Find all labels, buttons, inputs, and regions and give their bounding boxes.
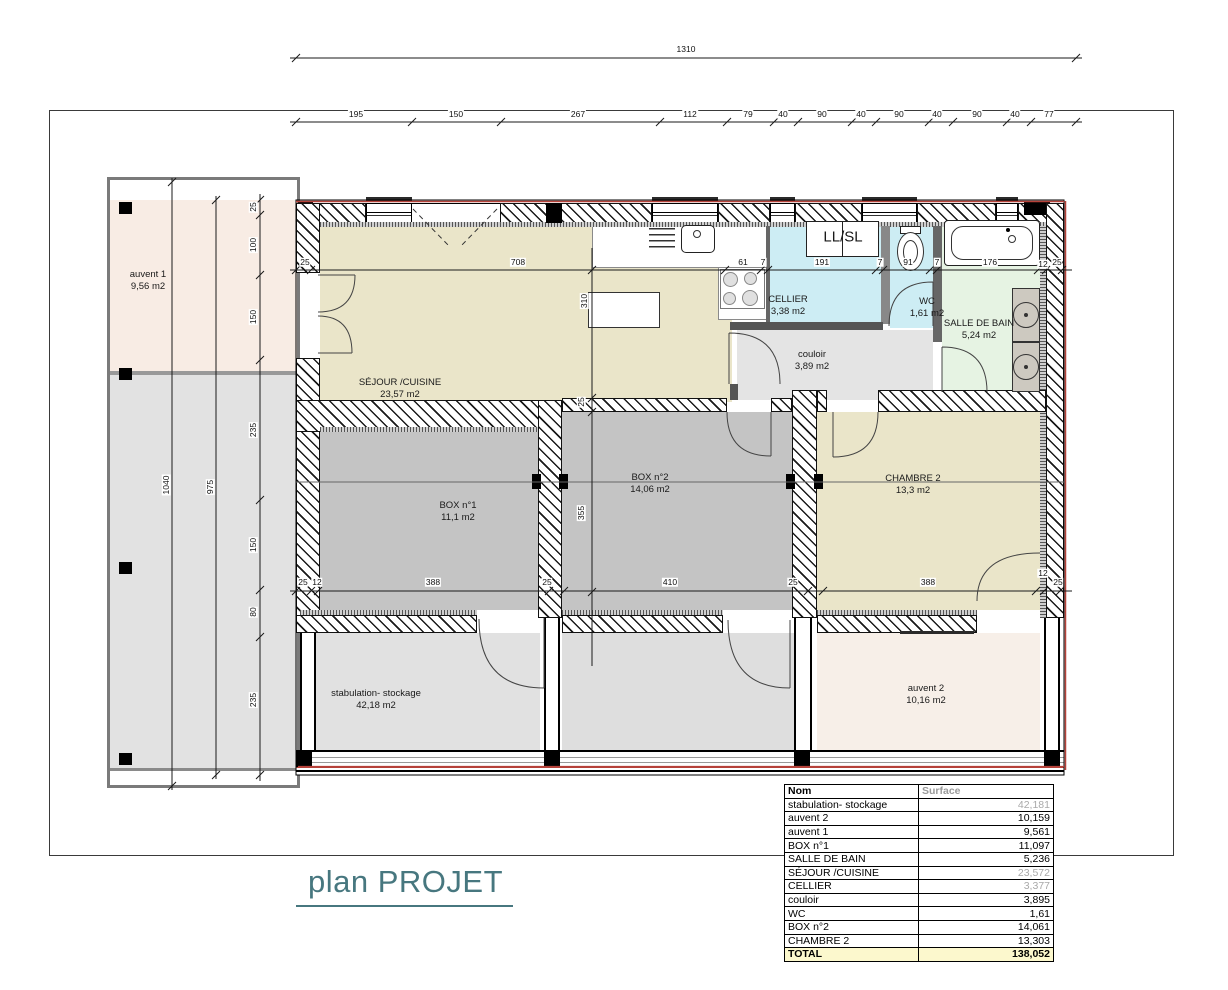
dim-label: 7 — [760, 258, 767, 267]
room-label-sejour: SÉJOUR /CUISINE23,57 m2 — [359, 377, 441, 401]
room-label-couloir: couloir3,89 m2 — [795, 349, 829, 373]
page-title: plan PROJET — [296, 864, 513, 907]
floor-plan-sheet: LL/SL — [0, 0, 1228, 990]
dim-label: 91 — [902, 258, 913, 267]
dim-label: 191 — [814, 258, 830, 267]
table-row: auvent 2 10,159 — [785, 811, 1053, 825]
dim-label: 267 — [570, 110, 586, 119]
room-label-auvent1: auvent 19,56 m2 — [130, 269, 166, 293]
dim-label: 176 — [982, 258, 998, 267]
table-header-nom: Nom — [785, 785, 919, 798]
dim-label: 12 — [1037, 569, 1048, 578]
dim-label: 388 — [920, 578, 936, 587]
dim-label: 310 — [580, 293, 589, 309]
dim-label: 7 — [877, 258, 884, 267]
dim-label: 355 — [577, 505, 586, 521]
table-row: CELLIER 3,377 — [785, 879, 1053, 893]
room-label-chambre2: CHAMBRE 213,3 m2 — [885, 473, 940, 497]
table-header-row: Nom Surface — [785, 785, 1053, 798]
dim-label: 40 — [1009, 110, 1020, 119]
dim-label: 80 — [249, 606, 258, 617]
dim-label: 40 — [855, 110, 866, 119]
dim-label: 40 — [777, 110, 788, 119]
table-row: WC 1,61 — [785, 906, 1053, 920]
dim-label: 61 — [737, 258, 748, 267]
dim-label: 1040 — [162, 475, 171, 496]
dim-label: 150 — [249, 537, 258, 553]
table-total-row: TOTAL 138,052 — [785, 947, 1053, 961]
dim-label: 975 — [206, 479, 215, 495]
dim-label: 150 — [249, 309, 258, 325]
dim-label: 12 — [311, 578, 322, 587]
dim-label: 410 — [662, 578, 678, 587]
dim-label: 90 — [816, 110, 827, 119]
dim-label: 150 — [448, 110, 464, 119]
table-row: BOX n°1 11,097 — [785, 838, 1053, 852]
table-row: CHAMBRE 2 13,303 — [785, 934, 1053, 948]
dim-label: 235 — [249, 692, 258, 708]
dim-label: 112 — [682, 110, 698, 119]
dim-label: 195 — [348, 110, 364, 119]
dim-label: 25 — [1052, 578, 1063, 587]
surface-table: Nom Surface stabulation- stockage 42,181… — [784, 784, 1054, 962]
dim-label: 79 — [742, 110, 753, 119]
room-label-wc: WC1,61 m2 — [910, 296, 944, 320]
dim-label: 7 — [934, 258, 941, 267]
dim-label: 25 — [787, 578, 798, 587]
table-row: BOX n°2 14,061 — [785, 920, 1053, 934]
dim-label: 25 — [1051, 258, 1062, 267]
dim-label: 90 — [893, 110, 904, 119]
room-label-box1: BOX n°111,1 m2 — [439, 500, 476, 524]
dim-label: 25 — [249, 201, 258, 212]
table-row: SALLE DE BAIN 5,236 — [785, 852, 1053, 866]
dim-label: 40 — [931, 110, 942, 119]
room-label-box2: BOX n°214,06 m2 — [630, 472, 670, 496]
dim-label: 77 — [1043, 110, 1054, 119]
room-label-sdb: SALLE DE BAIN5,24 m2 — [944, 318, 1014, 342]
dim-label: 708 — [510, 258, 526, 267]
table-row: auvent 1 9,561 — [785, 825, 1053, 839]
dim-label: 25 — [297, 578, 308, 587]
table-row: couloir 3,895 — [785, 893, 1053, 907]
dim-label: 388 — [425, 578, 441, 587]
dim-label: 1310 — [676, 45, 697, 54]
dim-label: 235 — [249, 422, 258, 438]
dim-label: 25 — [299, 258, 310, 267]
dim-label: 100 — [249, 237, 258, 253]
room-label-cellier: CELLIER3,38 m2 — [768, 294, 808, 318]
room-label-stabulation: stabulation- stockage42,18 m2 — [331, 688, 421, 712]
table-row: stabulation- stockage 42,181 — [785, 798, 1053, 812]
table-row: SÉJOUR /CUISINE 23,572 — [785, 866, 1053, 880]
dim-label: 90 — [971, 110, 982, 119]
room-label-auvent2: auvent 210,16 m2 — [906, 683, 946, 707]
dim-label: 25 — [577, 396, 586, 407]
table-header-surface: Surface — [919, 785, 1053, 798]
dim-label: 25 — [541, 578, 552, 587]
laundry-label: LL/SL — [823, 229, 862, 248]
dim-label: 12 — [1037, 260, 1048, 269]
